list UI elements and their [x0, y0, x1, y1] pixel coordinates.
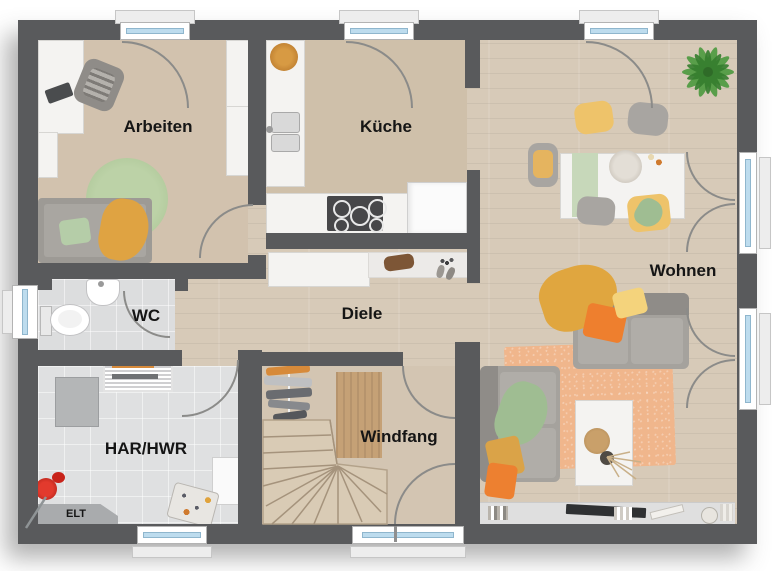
wall-diele-windfang [262, 352, 403, 366]
faucet-icon [266, 126, 273, 133]
dining-chair-yellow [573, 100, 615, 136]
room-label-wc: WC [132, 306, 160, 326]
drying-laundry-grey [112, 374, 158, 379]
entrance-door-glass [362, 532, 454, 538]
toilet-seat [58, 310, 82, 328]
bouquet-icon [609, 150, 642, 183]
tall-cabinet [38, 132, 58, 178]
burner-icon [350, 206, 370, 226]
window-kueche [344, 22, 414, 40]
wardrobe [226, 40, 250, 176]
french-door-glass [745, 315, 751, 403]
books-icon [614, 507, 632, 520]
sofa-cushion [631, 318, 683, 364]
window-arbeiten [120, 22, 190, 40]
window-glass [22, 289, 28, 336]
chair-cushion [533, 150, 553, 178]
wall-stub-kueche-wohnen [465, 40, 480, 88]
green-pillow [58, 217, 91, 246]
fridge [407, 182, 467, 234]
wall-arbeiten-kueche [248, 40, 266, 205]
plant-pot-icon [600, 451, 614, 465]
wall-kueche-diele [266, 233, 467, 249]
entrance-door [352, 526, 464, 544]
floor-plan: Arbeiten Küche Wohnen WC Diele HAR/HWR W… [0, 0, 775, 571]
wall-stub-wc-door [175, 263, 188, 291]
wall-notch-wc [38, 279, 52, 290]
wall-har-windfang [238, 350, 262, 524]
burner-icon [369, 218, 384, 233]
french-door-1 [739, 152, 757, 254]
wall-exterior-right [737, 20, 757, 544]
dining-chair-grey [626, 101, 669, 137]
window-glass [126, 28, 184, 34]
burner-icon [334, 218, 349, 233]
room-label-wohnen: Wohnen [650, 261, 717, 281]
books-icon [488, 506, 508, 520]
wall-windfang-wohnen [455, 342, 480, 524]
sink-basin-2 [271, 134, 300, 152]
window-sill [132, 546, 212, 558]
room-label-har-hwr: HAR/HWR [105, 439, 187, 459]
wall-wc-har [18, 350, 182, 366]
window-har [137, 526, 207, 544]
orange-pillow [484, 462, 518, 500]
wall-exterior-left [18, 20, 38, 544]
wardrobe-shelf-line [226, 106, 248, 107]
window-sill [759, 157, 771, 249]
candle-icon [701, 507, 718, 524]
vacuum-head-icon [52, 472, 65, 483]
room-label-windfang: Windfang [360, 427, 437, 447]
french-door-glass [745, 159, 751, 247]
room-label-kueche: Küche [360, 117, 412, 137]
wall-kueche-wohnen [467, 170, 480, 283]
fruit-bowl [270, 43, 298, 71]
burner-icon [368, 199, 387, 218]
room-label-arbeiten: Arbeiten [124, 117, 193, 137]
room-label-elt: ELT [66, 508, 86, 520]
entrance-door-mullion [394, 526, 397, 542]
burner-icon [333, 200, 351, 218]
window-glass [590, 28, 648, 34]
dining-chair-grey [576, 196, 616, 227]
french-door-2 [739, 308, 757, 410]
fruit-platter-icon [642, 148, 668, 174]
freezer [55, 377, 99, 427]
room-label-diele: Diele [342, 304, 383, 324]
sideboard [268, 252, 370, 287]
entrance-threshold [350, 546, 466, 558]
window-wohnen [584, 22, 654, 40]
window-glass [350, 28, 408, 34]
window-sill [759, 313, 771, 405]
window-wc [12, 285, 38, 339]
wall-arbeiten-wc [18, 263, 266, 279]
sink-basin-1 [271, 112, 300, 133]
books-icon [720, 504, 733, 521]
window-glass [143, 532, 201, 538]
basin-faucet-icon [98, 281, 104, 287]
